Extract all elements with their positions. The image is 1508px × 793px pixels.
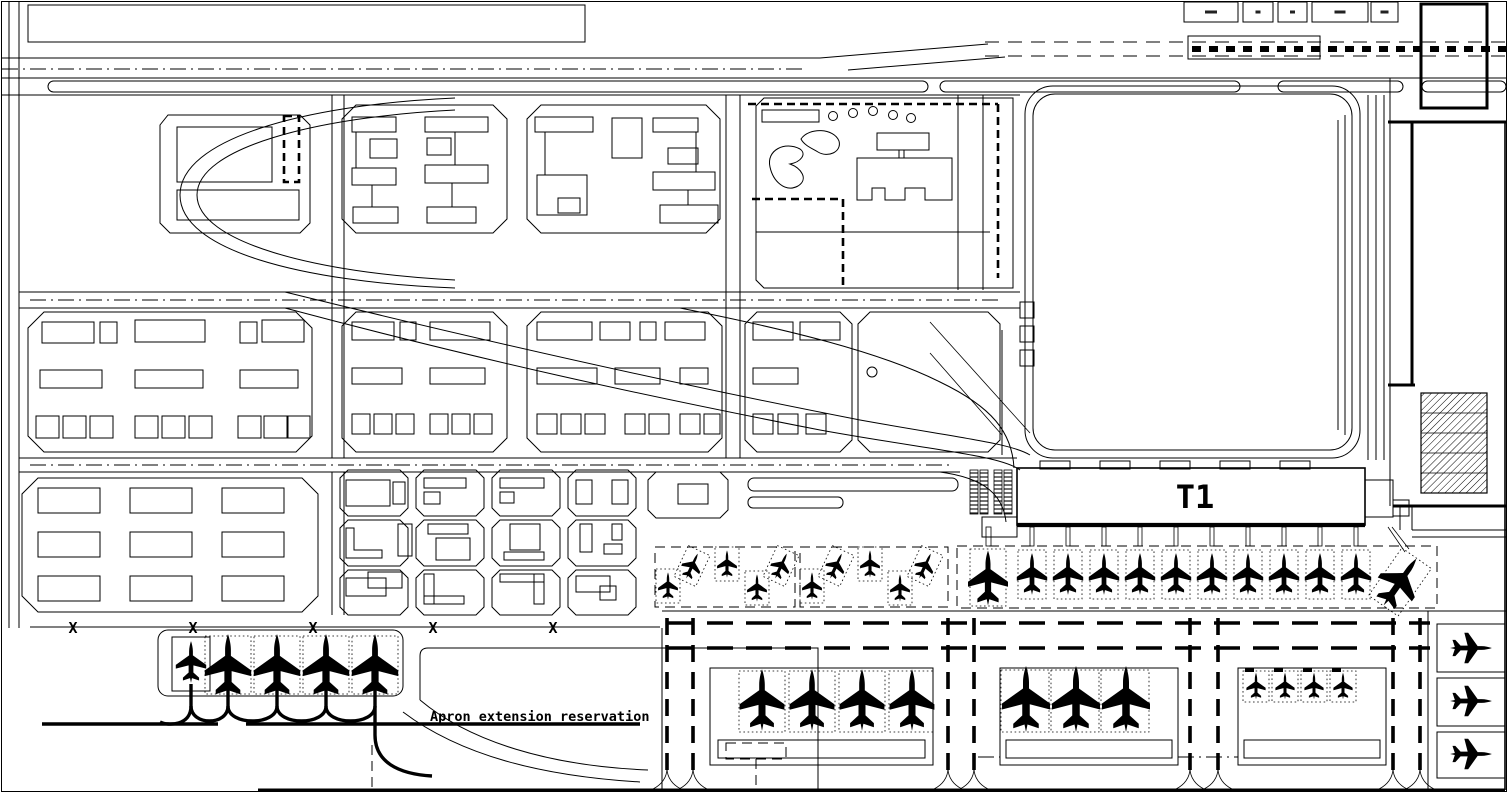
garden-parcel [748,98,1013,290]
legend-boxes [1184,2,1398,22]
aircraft-icon [1367,547,1434,618]
legend-box-text-mark [1335,11,1346,14]
tree-icons [829,107,916,123]
aircraft-icon [1053,553,1083,595]
warehouse-block-1 [28,312,312,452]
pond-shapes [769,131,839,188]
aircraft-icon [890,669,935,731]
aircraft-icon [1341,553,1371,595]
aircraft-icon [1002,666,1050,732]
terminal-approach-strip [648,470,1012,518]
boundary-x-marker: X [308,619,317,637]
aircraft-icon [1305,553,1335,595]
aircraft-icon [1017,553,1047,595]
aircraft-icon [717,550,737,577]
aircraft-icon [1089,553,1119,595]
boundary-x-marker: X [68,619,77,637]
aircraft-icon [303,634,349,698]
aircraft-icon [1269,553,1299,595]
aircraft-icon [1233,553,1263,595]
east-side-structures [1388,122,1506,790]
aircraft-icon [860,550,880,577]
aircraft-icon [821,549,851,582]
aircraft-icon [910,549,940,582]
aircraft-icon [176,641,206,683]
legend-box-text-mark [1256,11,1261,14]
legend-box-text-mark [1205,11,1217,14]
aircraft-icon [1052,666,1100,732]
aircraft-icon [1161,553,1191,595]
aircraft-icon [1102,666,1150,732]
boundary-x-marker: X [188,619,197,637]
garden-building [857,133,952,200]
jet-bridges [986,527,1409,552]
aircraft-icon [1125,553,1155,595]
aircraft-icon [1333,673,1352,699]
aircraft-icon [1450,633,1492,663]
cad-site-plan: T1 Apron extension reservation XXXXX [0,0,1508,793]
campus-block-3 [527,105,720,233]
lead-in-lines [42,684,640,776]
aircraft-icon [747,574,767,601]
terminal-label: T1 [1176,478,1215,516]
campus-block-1 [160,115,310,233]
taxiway-flares [653,768,1434,789]
campus-block-2 [342,105,507,233]
aircraft-icon [352,634,398,698]
boundary-x-markers: XXXXX [68,619,557,637]
warehouse-block-3 [527,312,722,452]
aircraft-icon [968,551,1008,606]
housing-block [22,478,318,612]
aircraft-icon [740,669,785,731]
aircraft-icon [890,574,910,601]
aircraft-icon [205,634,251,698]
aircraft-icon [677,549,707,582]
aircraft-icon [254,634,300,698]
apron-reservation-label: Apron extension reservation [430,709,649,725]
aircraft-layer [176,547,1492,770]
warehouse-block-2 [342,312,507,452]
aircraft-icon [1246,673,1265,699]
hatched-facility [1421,393,1487,493]
terminal-forecourt-parcel [1020,86,1360,458]
aircraft-icon [790,669,835,731]
small-parcel-grid [340,470,636,615]
aircraft-icon [1197,553,1227,595]
boundary-x-marker: X [548,619,557,637]
aircraft-icon [766,549,796,582]
aircraft-icon [1304,673,1323,699]
boundary-x-marker: X [428,619,437,637]
railway-line [985,36,1506,59]
aircraft-icon [1450,686,1492,716]
aircraft-icon [1275,673,1294,699]
warehouse-block-4 [745,312,1000,452]
legend-box-text-mark [1381,11,1389,14]
legend-box-text-mark [1290,11,1295,14]
aircraft-icon [1450,739,1492,769]
aircraft-icon [840,669,885,731]
